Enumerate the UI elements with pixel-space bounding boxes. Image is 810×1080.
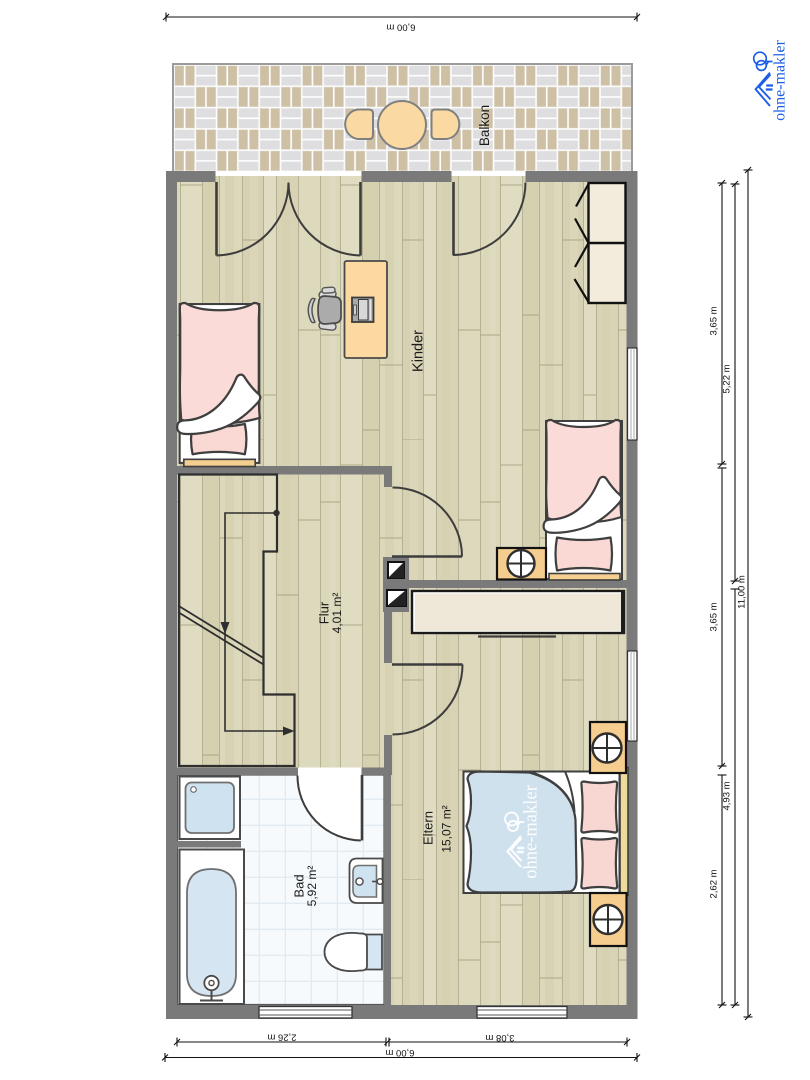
svg-text:4,01 m²: 4,01 m²	[330, 593, 344, 634]
svg-text:3,65 m: 3,65 m	[709, 306, 720, 335]
svg-text:Kinder: Kinder	[411, 330, 427, 372]
svg-text:6,00 m: 6,00 m	[385, 1047, 414, 1058]
svg-text:4,93 m: 4,93 m	[722, 781, 733, 810]
svg-text:Eltern: Eltern	[421, 811, 436, 845]
svg-text:2,62 m: 2,62 m	[709, 869, 720, 898]
svg-text:15,07 m²: 15,07 m²	[440, 805, 454, 852]
svg-text:5,92 m²: 5,92 m²	[305, 866, 319, 907]
svg-text:6,00 m: 6,00 m	[386, 22, 415, 33]
svg-text:ohne-makler: ohne-makler	[772, 39, 789, 121]
svg-text:2,26 m: 2,26 m	[267, 1032, 296, 1043]
svg-text:3,65 m: 3,65 m	[709, 602, 720, 631]
svg-text:5,22 m: 5,22 m	[722, 364, 733, 393]
svg-text:Balkon: Balkon	[477, 105, 492, 146]
svg-text:3,08 m: 3,08 m	[485, 1032, 514, 1043]
svg-text:ohne-makler: ohne-makler	[522, 785, 542, 879]
svg-text:11,00 m: 11,00 m	[737, 575, 748, 609]
